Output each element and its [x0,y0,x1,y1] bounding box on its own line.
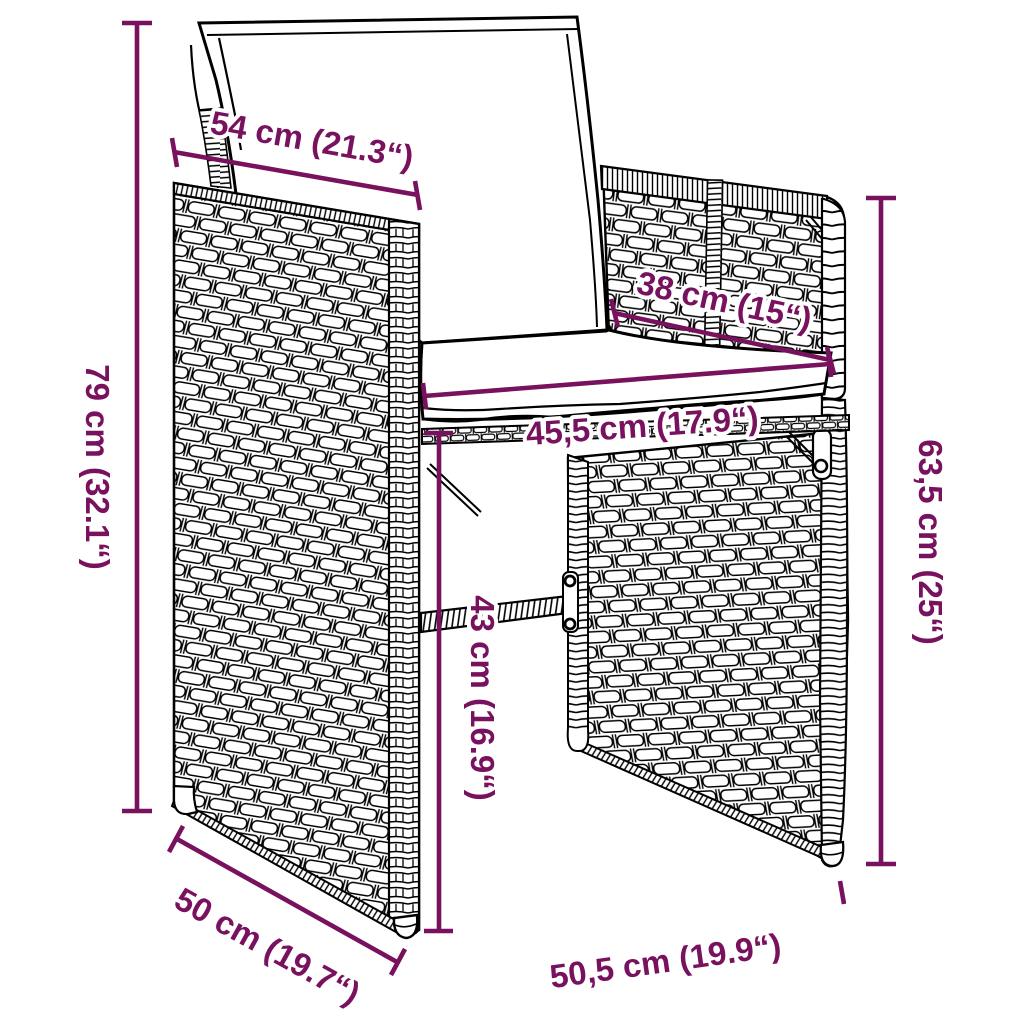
svg-text:50,5 cm (19.9“): 50,5 cm (19.9“) [547,926,783,995]
svg-text:63,5 cm (25“): 63,5 cm (25“) [912,439,949,644]
svg-text:43 cm (16.9“): 43 cm (16.9“) [464,595,501,800]
svg-text:79 cm (32.1“): 79 cm (32.1“) [79,364,116,569]
